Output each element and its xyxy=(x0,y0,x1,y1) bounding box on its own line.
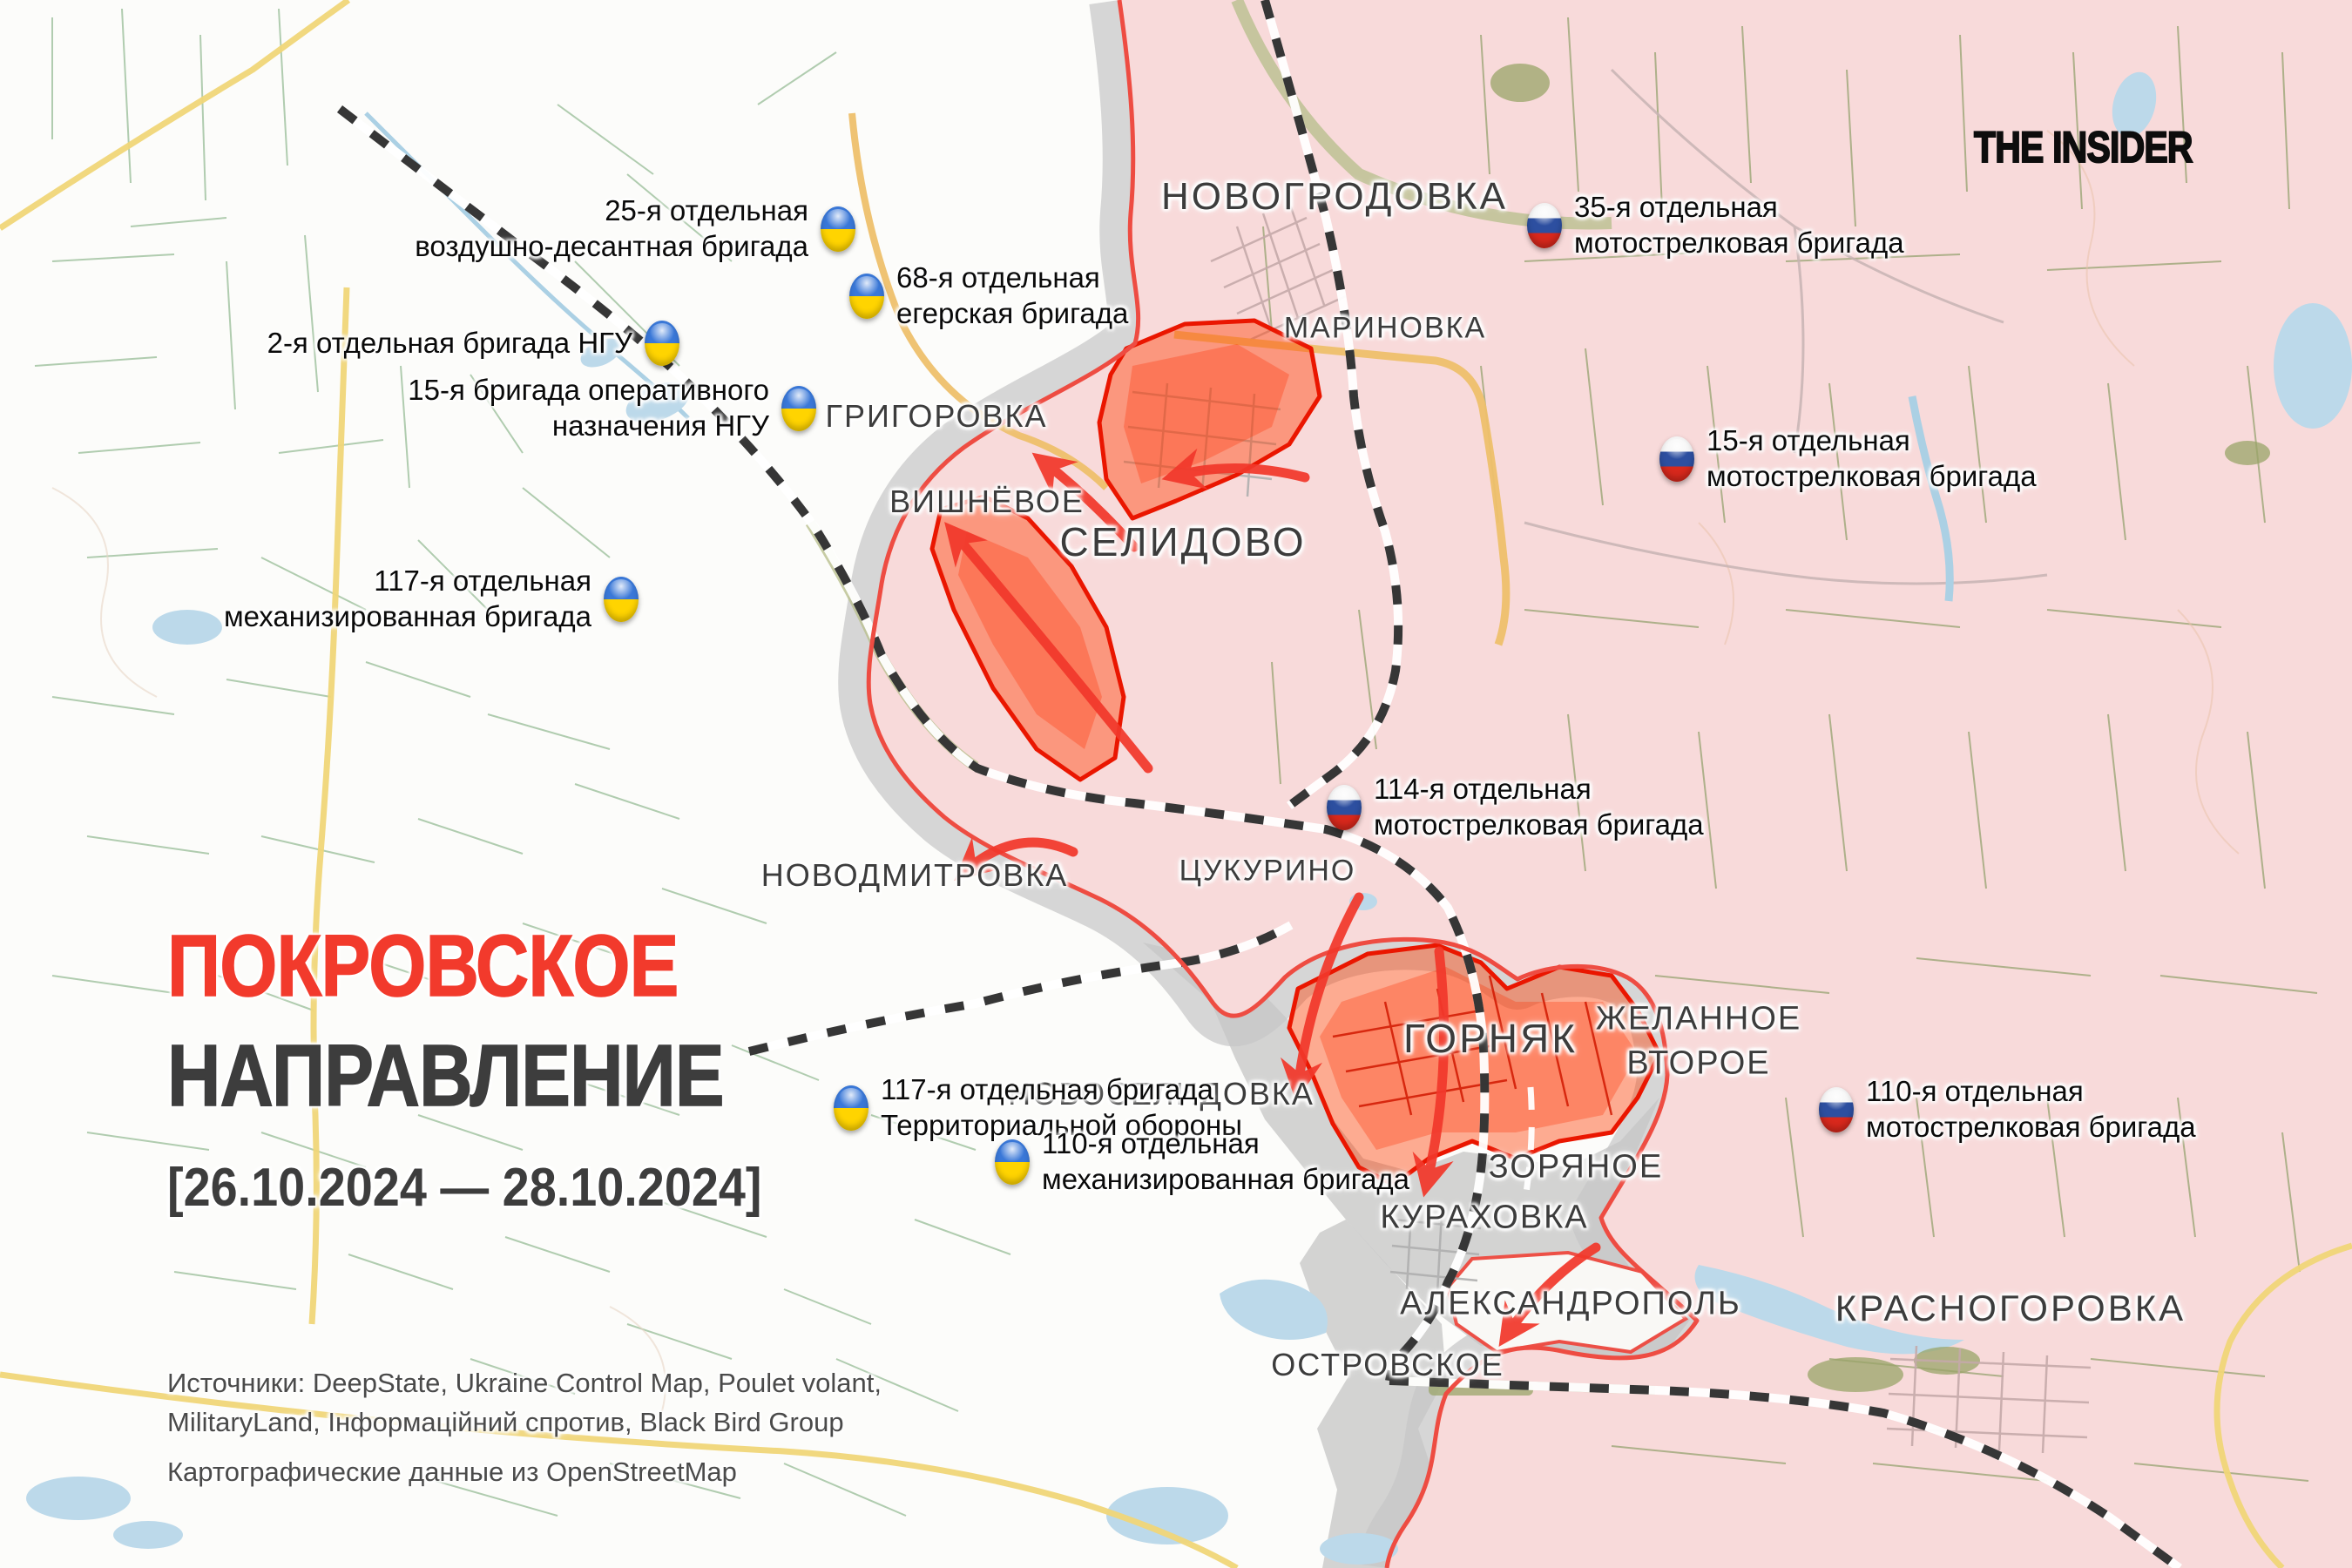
map-title-region: ПОКРОВСКОЕ xyxy=(167,916,679,1017)
town-label-kurakhovka: КУРАХОВКА xyxy=(1380,1200,1588,1237)
brigade-marker-ru-114: 114-я отдельнаямотострелковая бригада xyxy=(1327,772,1704,843)
brigade-marker-ua-68: 68-я отдельнаяегерская бригада xyxy=(849,260,1128,332)
brigade-label: воздушно-десантная бригада xyxy=(415,229,808,265)
war-map-canvas: НОВОГРОДОВКА МАРИНОВКА ГРИГОРОВКА ВИШНЁВ… xyxy=(0,0,2352,1568)
brigade-marker-ua-2-ngu: 2-я отдельная бригада НГУ xyxy=(267,321,679,366)
map-title-date-range: [26.10.2024 — 28.10.2024] xyxy=(167,1157,762,1219)
town-label-tsukurino: ЦУКУРИНО xyxy=(1179,855,1356,889)
brigade-label: 68-я отдельная xyxy=(896,260,1128,296)
town-label-aleksandropol: АЛЕКСАНДРОПОЛЬ xyxy=(1400,1286,1741,1323)
the-insider-logo: THE INSIDER xyxy=(1974,122,2193,172)
sources-line-2: MilitaryLand, Інформаційний спротив, Bla… xyxy=(167,1403,882,1443)
brigade-label: мотострелковая бригада xyxy=(1707,459,2037,495)
brigade-label: механизированная бригада xyxy=(224,599,591,635)
brigade-label: 35-я отдельная xyxy=(1574,190,1904,226)
brigade-marker-ua-15-ngu: 15-я бригада оперативногоназначения НГУ xyxy=(408,373,816,444)
sources-attribution: Источники: DeepState, Ukraine Control Ma… xyxy=(167,1364,882,1492)
brigade-marker-ru-35: 35-я отдельнаямотострелковая бригада xyxy=(1527,190,1904,261)
brigade-marker-ua-117-mech: 117-я отдельнаямеханизированная бригада xyxy=(224,564,639,635)
brigade-label: 25-я отдельная xyxy=(415,193,808,229)
town-label-zoryanoe: ЗОРЯНОЕ xyxy=(1489,1149,1663,1186)
brigade-marker-ua-110-mech: 110-я отдельнаямеханизированная бригада xyxy=(995,1126,1409,1198)
brigade-marker-ru-110: 110-я отдельнаямотострелковая бригада xyxy=(1819,1074,2196,1146)
brigade-label: мотострелковая бригада xyxy=(1574,226,1904,261)
brigade-label: 114-я отдельная xyxy=(1374,772,1704,808)
town-label-zhelannoe-line1: ЖЕЛАННОЕ xyxy=(1596,997,1802,1042)
ukraine-flag-icon xyxy=(821,206,855,252)
map-graphics xyxy=(0,0,2352,1568)
town-label-marinovka: МАРИНОВКА xyxy=(1284,312,1486,346)
ukraine-flag-icon xyxy=(604,577,639,622)
sources-line-1: Источники: DeepState, Ukraine Control Ma… xyxy=(167,1364,882,1403)
town-label-zhelannoe-vtoroe: ЖЕЛАННОЕ ВТОРОЕ xyxy=(1596,997,1802,1087)
brigade-label: механизированная бригада xyxy=(1042,1162,1409,1198)
russia-flag-icon xyxy=(1327,785,1362,830)
sources-line-3: Картографические данные из OpenStreetMap xyxy=(167,1453,882,1492)
ukraine-flag-icon xyxy=(781,386,816,431)
brigade-marker-ru-15: 15-я отдельнаямотострелковая бригада xyxy=(1659,423,2037,495)
russia-flag-icon xyxy=(1527,203,1562,248)
brigade-label: мотострелковая бригада xyxy=(1866,1110,2196,1146)
town-label-gornyak: ГОРНЯК xyxy=(1403,1015,1578,1062)
town-label-selidovo: СЕЛИДОВО xyxy=(1059,518,1306,565)
brigade-marker-ua-25: 25-я отдельнаявоздушно-десантная бригада xyxy=(415,193,855,265)
ukraine-flag-icon xyxy=(995,1139,1030,1185)
ukraine-flag-icon xyxy=(834,1085,868,1131)
ukraine-flag-icon xyxy=(645,321,679,366)
brigade-label: 110-я отдельная xyxy=(1866,1074,2196,1110)
brigade-label: мотострелковая бригада xyxy=(1374,808,1704,843)
town-label-krasnogorovka: КРАСНОГОРОВКА xyxy=(1835,1288,2186,1329)
brigade-label: егерская бригада xyxy=(896,296,1128,332)
brigade-label: 117-я отдельная бригада xyxy=(881,1072,1242,1108)
russia-flag-icon xyxy=(1659,436,1694,482)
town-label-vishnyovoe: ВИШНЁВОЕ xyxy=(889,483,1085,520)
town-label-ostrovskoe: ОСТРОВСКОЕ xyxy=(1271,1347,1504,1383)
brigade-label: 110-я отдельная xyxy=(1042,1126,1409,1162)
town-label-zhelannoe-line2: ВТОРОЕ xyxy=(1596,1042,1802,1086)
map-title-direction: НАПРАВЛЕНИЕ xyxy=(167,1026,724,1126)
town-label-novogrodovka: НОВОГРОДОВКА xyxy=(1161,175,1508,219)
russia-flag-icon xyxy=(1819,1087,1854,1132)
town-label-novodmitrovka: НОВОДМИТРОВКА xyxy=(761,857,1068,894)
brigade-label: 15-я бригада оперативного xyxy=(408,373,769,409)
brigade-label: 117-я отдельная xyxy=(224,564,591,599)
town-label-grigorovka: ГРИГОРОВКА xyxy=(825,398,1047,435)
brigade-label: назначения НГУ xyxy=(408,409,769,444)
brigade-label: 2-я отдельная бригада НГУ xyxy=(267,326,632,362)
ukraine-flag-icon xyxy=(849,274,884,319)
brigade-label: 15-я отдельная xyxy=(1707,423,2037,459)
